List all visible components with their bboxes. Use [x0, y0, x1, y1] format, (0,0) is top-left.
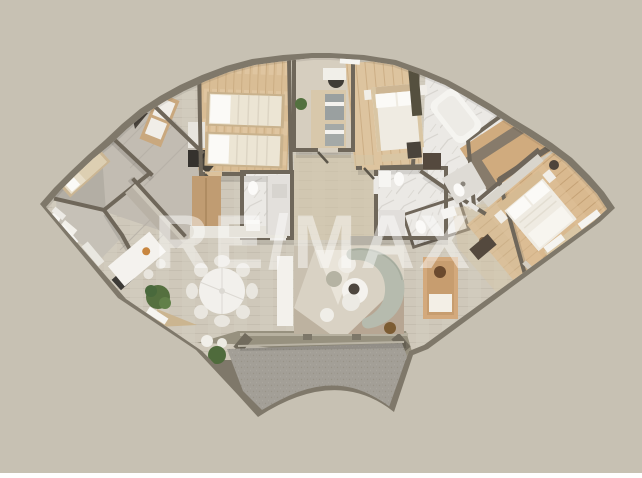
svg-text:RE/MAX: RE/MAX [154, 200, 474, 285]
